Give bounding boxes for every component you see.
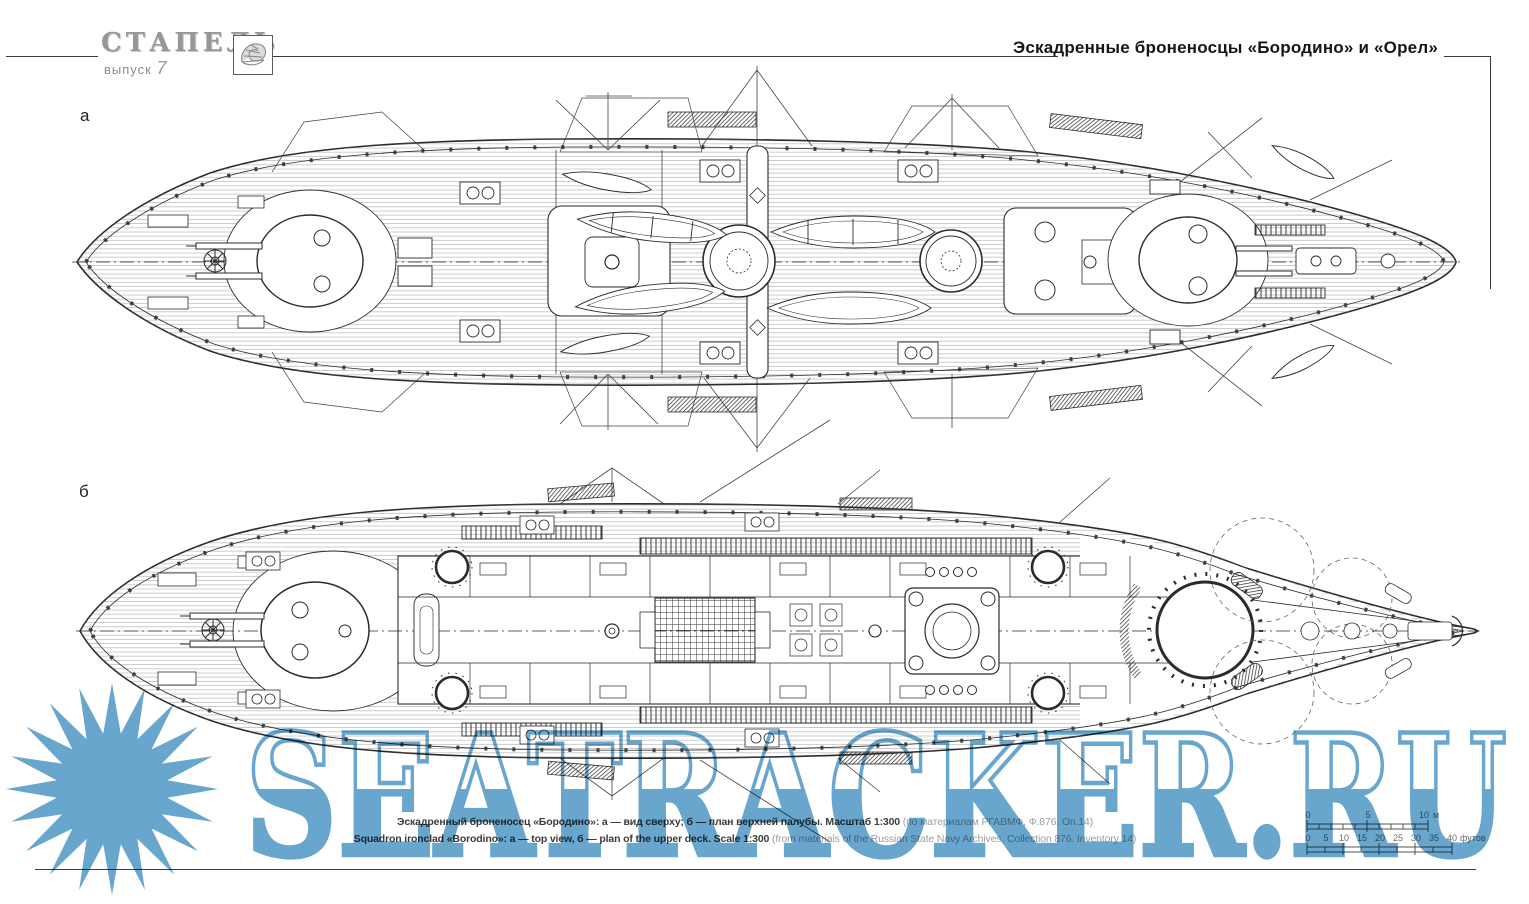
battleship-drawings: [0, 0, 1529, 904]
bow-capstan-b: [202, 619, 224, 641]
funnel-2-a: [920, 230, 982, 292]
bow-capstan-a: [204, 250, 226, 272]
magazine-page: СТАПЕЛЬ выпуск 7 Эскадренные броненосцы …: [0, 0, 1529, 904]
wardroom-table-b: [414, 594, 439, 666]
ship-deck-plan: [74, 420, 1484, 842]
ship-top-view: [70, 66, 1465, 452]
